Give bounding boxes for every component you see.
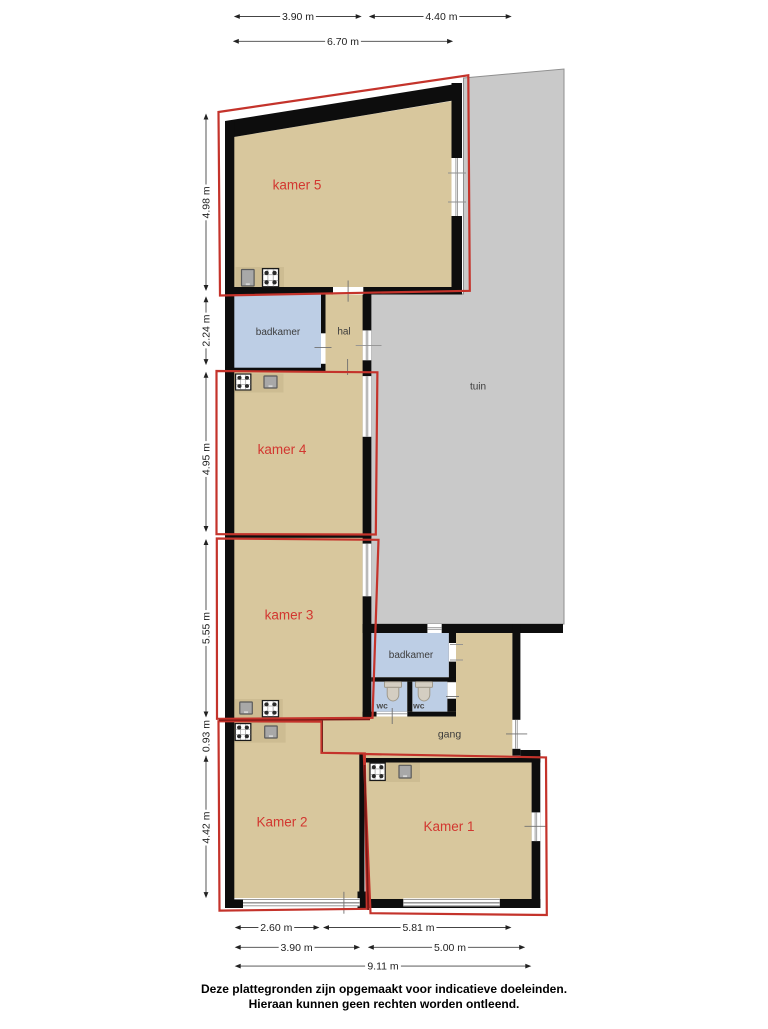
- svg-text:4.95 m: 4.95 m: [201, 443, 213, 475]
- svg-text:Kamer 1: Kamer 1: [423, 819, 474, 834]
- svg-text:4.40 m: 4.40 m: [425, 11, 457, 23]
- svg-text:Kamer 2: Kamer 2: [256, 815, 307, 830]
- svg-text:kamer 4: kamer 4: [258, 442, 307, 457]
- svg-text:3.90 m: 3.90 m: [281, 942, 313, 954]
- svg-text:4.42 m: 4.42 m: [201, 811, 213, 843]
- svg-text:kamer 3: kamer 3: [265, 608, 314, 623]
- svg-text:3.90 m: 3.90 m: [282, 11, 314, 23]
- svg-text:5.81 m: 5.81 m: [402, 922, 434, 934]
- svg-text:2.24 m: 2.24 m: [201, 314, 213, 346]
- svg-text:kamer 5: kamer 5: [273, 178, 322, 193]
- svg-text:badkamer: badkamer: [256, 327, 301, 338]
- svg-text:6.70 m: 6.70 m: [327, 36, 359, 48]
- svg-text:5.55 m: 5.55 m: [201, 612, 213, 644]
- svg-text:gang: gang: [438, 728, 462, 740]
- svg-text:Hieraan kunnen geen rechten wo: Hieraan kunnen geen rechten worden ontle…: [249, 997, 520, 1011]
- svg-text:5.00 m: 5.00 m: [434, 942, 466, 954]
- svg-text:Deze plattegronden zijn opgema: Deze plattegronden zijn opgemaakt voor i…: [201, 982, 567, 996]
- svg-text:4.98 m: 4.98 m: [201, 186, 213, 218]
- svg-text:wc: wc: [376, 700, 389, 710]
- svg-text:badkamer: badkamer: [389, 650, 434, 661]
- svg-text:wc: wc: [412, 701, 425, 711]
- svg-text:9.11 m: 9.11 m: [367, 961, 399, 973]
- svg-text:0.93 m: 0.93 m: [201, 720, 213, 752]
- svg-text:2.60 m: 2.60 m: [260, 922, 292, 934]
- svg-text:hal: hal: [337, 327, 350, 338]
- svg-text:tuin: tuin: [470, 382, 486, 393]
